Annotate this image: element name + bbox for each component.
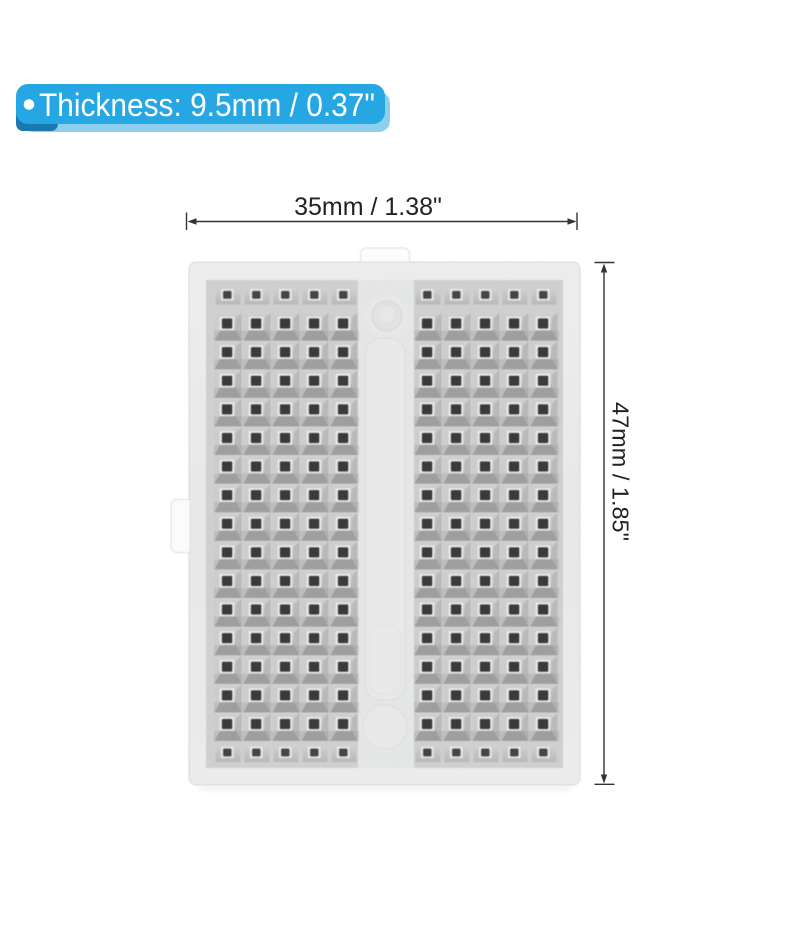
svg-text:47mm / 1.85": 47mm / 1.85"	[608, 402, 634, 541]
svg-text:35mm / 1.38": 35mm / 1.38"	[294, 193, 442, 221]
svg-text:Thickness: 9.5mm / 0.37": Thickness: 9.5mm / 0.37"	[39, 86, 375, 123]
